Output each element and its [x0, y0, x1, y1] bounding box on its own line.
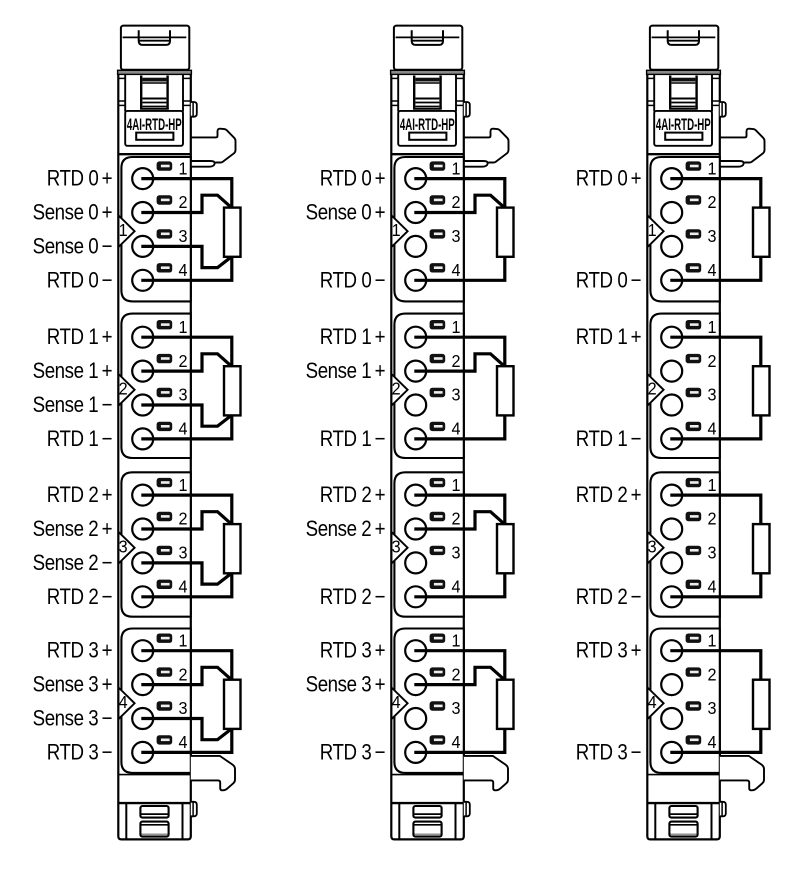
svg-text:Sense 2 +: Sense 2 + — [306, 518, 385, 542]
svg-text:3: 3 — [451, 698, 460, 718]
svg-text:4: 4 — [707, 419, 716, 439]
svg-text:RTD 3 −: RTD 3 − — [320, 741, 385, 765]
svg-text:1: 1 — [178, 475, 187, 495]
svg-text:1: 1 — [178, 317, 187, 337]
svg-text:1: 1 — [392, 220, 401, 240]
svg-text:RTD 3 +: RTD 3 + — [47, 639, 112, 663]
svg-text:4: 4 — [178, 419, 187, 439]
svg-text:RTD 3 +: RTD 3 + — [576, 639, 641, 663]
svg-text:2: 2 — [178, 509, 187, 529]
svg-text:2: 2 — [451, 351, 460, 371]
svg-text:1: 1 — [178, 631, 187, 651]
svg-text:3: 3 — [707, 543, 716, 563]
svg-text:RTD 1 −: RTD 1 − — [47, 428, 112, 452]
svg-text:RTD 3 +: RTD 3 + — [320, 639, 385, 663]
svg-text:RTD 1 −: RTD 1 − — [320, 428, 385, 452]
svg-text:Sense 2 +: Sense 2 + — [33, 518, 112, 542]
svg-text:2: 2 — [707, 351, 716, 371]
svg-text:RTD 3 −: RTD 3 − — [47, 741, 112, 765]
svg-text:1: 1 — [451, 475, 460, 495]
svg-text:1: 1 — [707, 317, 716, 337]
svg-text:3: 3 — [707, 698, 716, 718]
svg-text:Sense 0 +: Sense 0 + — [306, 201, 385, 225]
svg-text:3: 3 — [451, 385, 460, 405]
svg-text:2: 2 — [451, 665, 460, 685]
svg-text:4: 4 — [178, 260, 187, 280]
svg-text:2: 2 — [119, 379, 128, 399]
svg-text:RTD 0 −: RTD 0 − — [576, 269, 641, 293]
svg-text:2: 2 — [707, 509, 716, 529]
svg-text:RTD 0 +: RTD 0 + — [576, 167, 641, 191]
svg-text:RTD 2 −: RTD 2 − — [320, 585, 385, 609]
svg-text:Sense 3 +: Sense 3 + — [306, 673, 385, 697]
svg-text:2: 2 — [707, 192, 716, 212]
svg-text:RTD 1 +: RTD 1 + — [47, 326, 112, 350]
svg-text:4AI-RTD-HP: 4AI-RTD-HP — [656, 114, 711, 134]
svg-text:4: 4 — [451, 419, 460, 439]
svg-text:3: 3 — [451, 226, 460, 246]
svg-text:4: 4 — [178, 732, 187, 752]
svg-text:1: 1 — [119, 220, 128, 240]
svg-text:RTD 2 −: RTD 2 − — [576, 585, 641, 609]
svg-text:2: 2 — [178, 665, 187, 685]
svg-text:3: 3 — [392, 537, 401, 557]
svg-text:3: 3 — [178, 543, 187, 563]
svg-text:2: 2 — [178, 192, 187, 212]
svg-text:4AI-RTD-HP: 4AI-RTD-HP — [400, 114, 455, 134]
svg-text:4: 4 — [648, 692, 657, 712]
svg-text:Sense 1 +: Sense 1 + — [33, 360, 112, 384]
svg-text:4: 4 — [451, 260, 460, 280]
svg-text:3: 3 — [178, 385, 187, 405]
svg-text:4: 4 — [707, 577, 716, 597]
svg-text:4: 4 — [451, 577, 460, 597]
svg-text:RTD 2 −: RTD 2 − — [47, 585, 112, 609]
svg-text:2: 2 — [392, 379, 401, 399]
svg-text:4: 4 — [451, 732, 460, 752]
svg-text:Sense 3 −: Sense 3 − — [33, 707, 112, 731]
svg-text:3: 3 — [707, 226, 716, 246]
svg-text:RTD 0 +: RTD 0 + — [47, 167, 112, 191]
svg-text:3: 3 — [707, 385, 716, 405]
svg-text:RTD 1 +: RTD 1 + — [576, 326, 641, 350]
svg-text:RTD 3 −: RTD 3 − — [576, 741, 641, 765]
svg-text:1: 1 — [451, 317, 460, 337]
svg-text:Sense 0 −: Sense 0 − — [33, 235, 112, 259]
svg-text:RTD 1 −: RTD 1 − — [576, 428, 641, 452]
svg-text:RTD 2 +: RTD 2 + — [576, 484, 641, 508]
svg-text:Sense 3 +: Sense 3 + — [33, 673, 112, 697]
svg-text:3: 3 — [119, 537, 128, 557]
svg-text:4: 4 — [707, 260, 716, 280]
svg-text:1: 1 — [648, 220, 657, 240]
svg-text:Sense 1 +: Sense 1 + — [306, 360, 385, 384]
svg-text:4: 4 — [392, 692, 401, 712]
svg-text:Sense 0 +: Sense 0 + — [33, 201, 112, 225]
svg-text:3: 3 — [178, 226, 187, 246]
svg-text:1: 1 — [707, 159, 716, 179]
svg-text:1: 1 — [707, 631, 716, 651]
svg-text:2: 2 — [451, 192, 460, 212]
svg-text:RTD 0 −: RTD 0 − — [47, 269, 112, 293]
svg-text:Sense 1 −: Sense 1 − — [33, 394, 112, 418]
svg-text:2: 2 — [451, 509, 460, 529]
svg-text:4: 4 — [707, 732, 716, 752]
svg-text:RTD 2 +: RTD 2 + — [320, 484, 385, 508]
svg-text:2: 2 — [707, 665, 716, 685]
svg-text:1: 1 — [451, 159, 460, 179]
svg-text:RTD 0 +: RTD 0 + — [320, 167, 385, 191]
svg-text:1: 1 — [178, 159, 187, 179]
svg-text:1: 1 — [707, 475, 716, 495]
svg-text:4: 4 — [178, 577, 187, 597]
svg-text:2: 2 — [178, 351, 187, 371]
svg-text:3: 3 — [178, 698, 187, 718]
svg-text:4: 4 — [119, 692, 128, 712]
svg-text:RTD 2 +: RTD 2 + — [47, 484, 112, 508]
svg-text:Sense 2 −: Sense 2 − — [33, 552, 112, 576]
svg-text:4AI-RTD-HP: 4AI-RTD-HP — [127, 114, 182, 134]
svg-text:3: 3 — [648, 537, 657, 557]
svg-text:3: 3 — [451, 543, 460, 563]
svg-text:1: 1 — [451, 631, 460, 651]
svg-text:2: 2 — [648, 379, 657, 399]
svg-text:RTD 1 +: RTD 1 + — [320, 326, 385, 350]
svg-text:RTD 0 −: RTD 0 − — [320, 269, 385, 293]
